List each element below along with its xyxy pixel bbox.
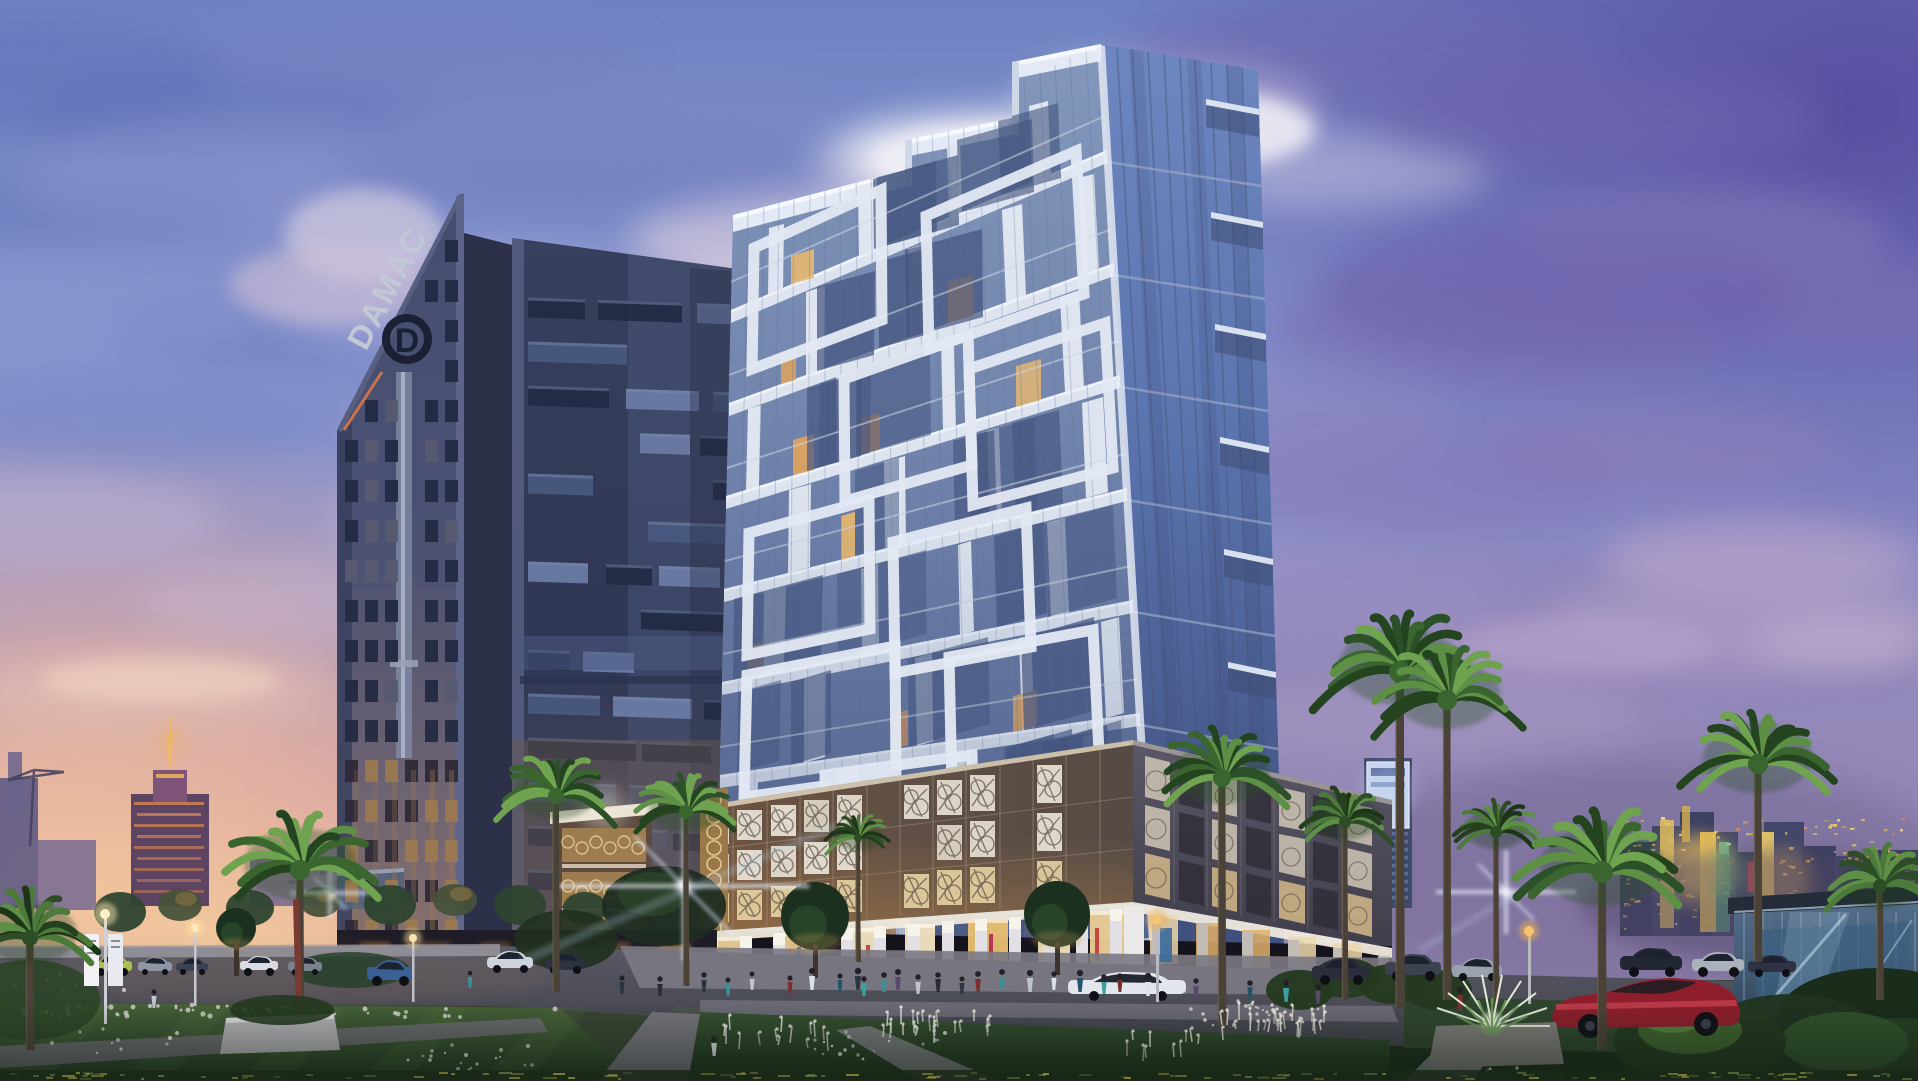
svg-text:D: D — [395, 322, 420, 360]
